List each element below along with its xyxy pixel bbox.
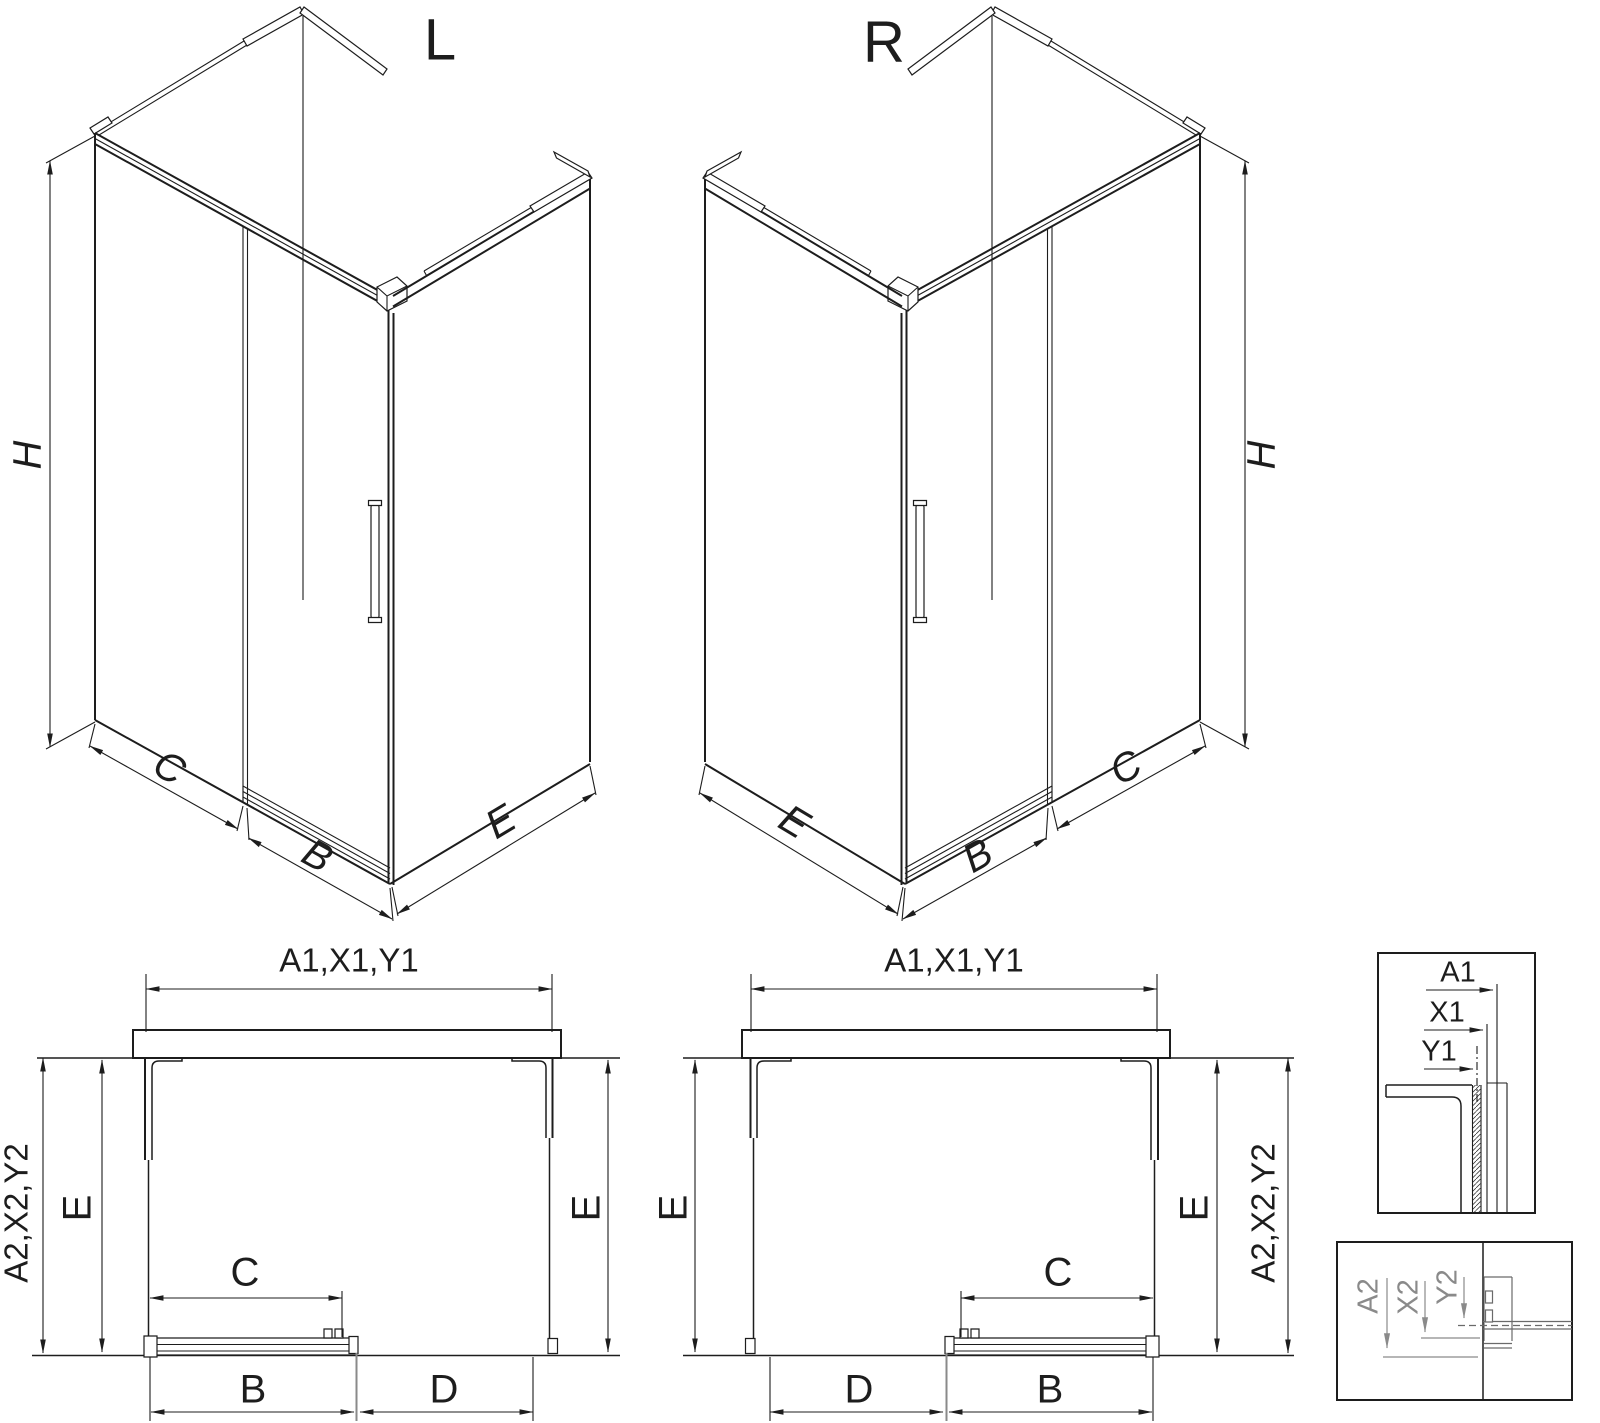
wall-bracket <box>705 152 741 177</box>
roller <box>324 1329 332 1338</box>
door-handle <box>371 505 379 618</box>
dim-label-y1: Y1 <box>1421 1036 1456 1068</box>
dim-label-height: H <box>6 440 50 469</box>
extension-line <box>751 974 1157 1032</box>
door-handle-cap <box>369 618 382 623</box>
door-fixed-panel-divider <box>1048 226 1053 804</box>
wall-profile-arm <box>1452 1097 1461 1213</box>
stabilizer-bar <box>96 41 247 135</box>
dim-label-door: B <box>1037 1368 1064 1412</box>
hatched-wall <box>742 1030 1170 1058</box>
wall-profile-arm <box>1386 1085 1472 1097</box>
dim-label-opening: D <box>430 1368 459 1412</box>
door-handle <box>916 505 924 618</box>
dim-label-a1: A1 <box>1440 957 1475 989</box>
door-guide-block <box>349 1337 358 1354</box>
hatched-wall <box>133 1030 561 1058</box>
bar-wall-pad <box>1183 117 1205 134</box>
iso-view-left: H C B E L <box>6 7 596 921</box>
dim-label-fixed-panel: C <box>1044 1251 1073 1295</box>
wall-profile-lip <box>1121 1058 1151 1160</box>
floor-bracket <box>746 1339 756 1354</box>
roller <box>971 1329 979 1338</box>
view-label-right: R <box>863 9 905 74</box>
stabilizer-bar <box>1048 41 1199 135</box>
side-panel-top-edge <box>705 178 902 307</box>
track-band <box>145 1338 357 1355</box>
detail-box <box>1378 953 1535 1213</box>
iso-view-right: H C B E R <box>699 7 1284 921</box>
track-end-block <box>144 1336 157 1357</box>
dim-label-depth-left: E <box>56 1195 100 1222</box>
wall-profile-lip <box>512 1058 546 1138</box>
dim-label-depth-outer: A2,X2,Y2 <box>0 1143 35 1282</box>
wall-profile-lip <box>757 1058 791 1138</box>
wall-profile-lip <box>152 1058 182 1160</box>
technical-drawing: H C B E L <box>0 0 1600 1423</box>
stabilizer-bar <box>761 207 872 276</box>
drawing-sheet: H C B E L <box>0 0 1600 1423</box>
extension-line <box>392 766 596 916</box>
plan-view-left: A1,X1,Y1 E E A2,X2,Y2 C B <box>0 942 620 1421</box>
dim-label-depth-right: E <box>1173 1195 1217 1222</box>
dim-label-door: B <box>240 1368 267 1412</box>
dim-label-a2: A2 <box>1353 1278 1385 1313</box>
dim-label-height: H <box>1240 440 1284 469</box>
corner-bracket-arm <box>908 7 995 75</box>
track-band <box>946 1338 1158 1355</box>
corner-bracket-arm <box>243 7 304 46</box>
detail-floor-profile: A2 X2 Y2 <box>1337 1242 1572 1400</box>
extension-line <box>46 136 95 749</box>
guide-tab <box>1486 1291 1493 1303</box>
door-handle-cap <box>914 618 927 623</box>
dim-label-opening: D <box>845 1368 874 1412</box>
dim-label-x1: X1 <box>1429 997 1464 1029</box>
extension-line <box>699 766 903 916</box>
stabilizer-bar <box>424 207 535 276</box>
door-handle-cap <box>914 501 927 506</box>
guide-tab <box>1486 1310 1493 1322</box>
dim-label-width: A1,X1,Y1 <box>279 942 418 979</box>
dim-label-door: B <box>295 830 340 881</box>
bottom-guide-profile <box>1484 1277 1512 1341</box>
corner-post <box>902 310 907 885</box>
corner-bracket-arm <box>300 7 387 75</box>
dim-label-door: B <box>955 830 1000 881</box>
wall-bracket <box>554 152 590 177</box>
floor-bracket <box>548 1339 558 1354</box>
extension-line <box>146 974 552 1032</box>
side-panel-top-edge <box>393 178 590 307</box>
corner-post <box>389 310 394 885</box>
dim-label-width: A1,X1,Y1 <box>884 942 1023 979</box>
bar-wall-pad <box>90 117 112 134</box>
dim-label-fixed-panel: C <box>146 742 194 795</box>
corner-bracket-arm <box>991 7 1052 46</box>
door-handle-cap <box>369 501 382 506</box>
dim-label-y2: Y2 <box>1432 1269 1464 1304</box>
track-lines <box>1484 1344 1512 1349</box>
door-guide-block <box>945 1337 954 1354</box>
dim-label-depth-outer: A2,X2,Y2 <box>1245 1143 1282 1282</box>
detail-wall-profile: A1 X1 Y1 <box>1378 953 1535 1213</box>
outer-channel <box>1487 984 1507 1213</box>
dim-label-fixed-panel: C <box>231 1251 260 1295</box>
dim-label-depth-left: E <box>652 1195 696 1222</box>
view-label-left: L <box>424 7 456 72</box>
dim-label-depth-right: E <box>565 1195 609 1222</box>
dim-label-fixed-panel: C <box>1102 741 1150 794</box>
door-fixed-panel-divider <box>243 226 248 804</box>
dim-label-x2: X2 <box>1393 1279 1425 1314</box>
glass-hatch <box>1473 1085 1482 1213</box>
plan-view-right: A1,X1,Y1 E E A2,X2,Y2 C B <box>652 942 1294 1421</box>
track-end-block <box>1146 1336 1159 1357</box>
